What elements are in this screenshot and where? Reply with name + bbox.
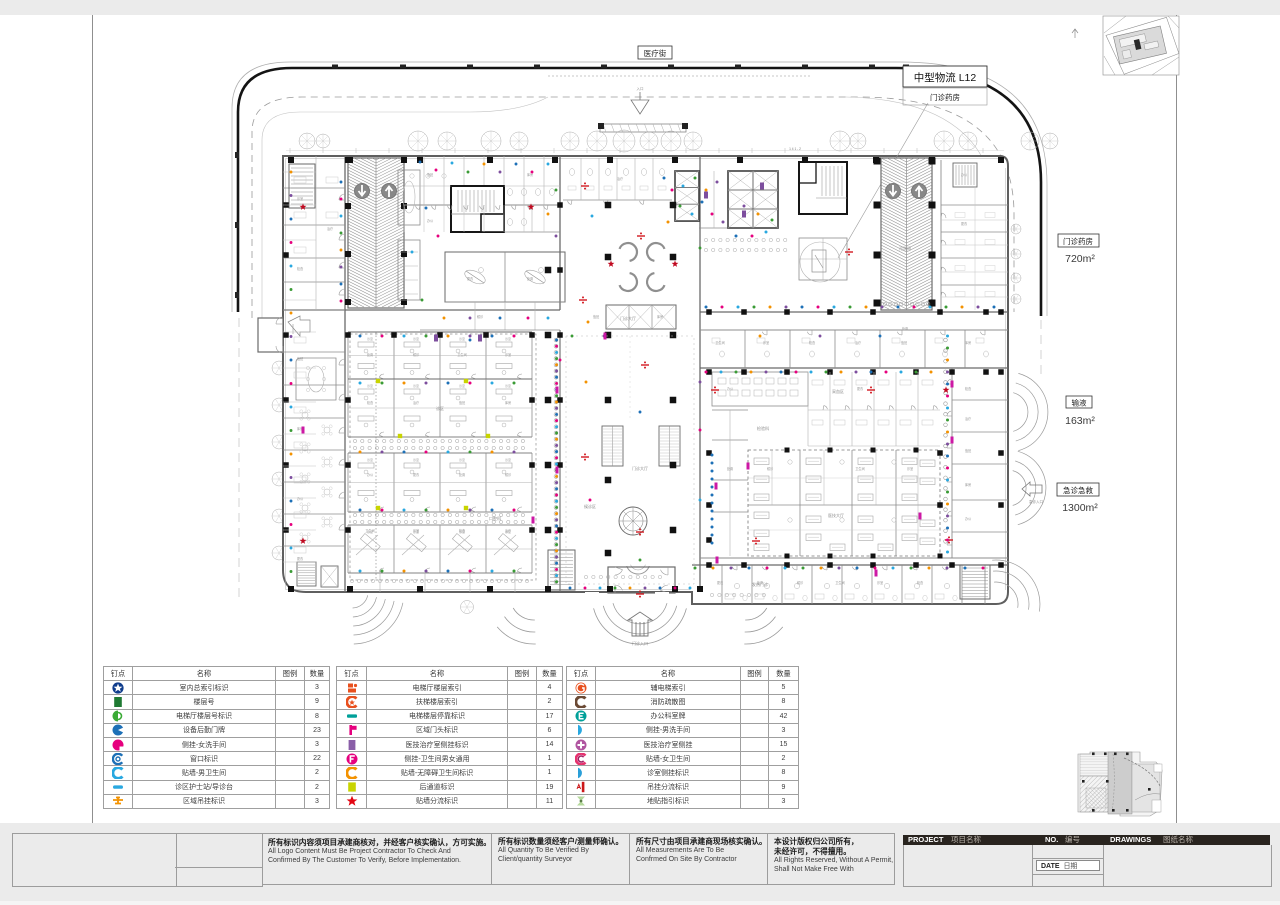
svg-text:值班: 值班 (297, 356, 304, 361)
svg-text:门诊入口: 门诊入口 (632, 640, 648, 646)
svg-text:更衣: 更衣 (857, 386, 864, 391)
svg-text:办公: 办公 (965, 516, 972, 521)
svg-text:污洗间: 污洗间 (899, 245, 911, 251)
svg-text:中型物流 L12: 中型物流 L12 (914, 71, 977, 84)
svg-text:办公: 办公 (427, 218, 434, 223)
svg-text:口腔科: 口腔科 (489, 515, 501, 521)
svg-text:值班: 值班 (593, 314, 600, 319)
svg-text:输液: 输液 (1072, 398, 1088, 408)
svg-text:治疗: 治疗 (327, 226, 334, 231)
svg-text:候诊: 候诊 (413, 352, 420, 357)
svg-text:候诊: 候诊 (477, 314, 484, 319)
svg-text:值班: 值班 (427, 172, 434, 177)
svg-text:门诊大厅: 门诊大厅 (620, 315, 636, 321)
svg-text:诊室: 诊室 (459, 457, 465, 462)
svg-text:办公: 办公 (727, 386, 734, 391)
svg-text:治疗: 治疗 (855, 340, 862, 345)
svg-text:库房: 库房 (965, 482, 971, 487)
svg-text:诊室: 诊室 (367, 383, 373, 388)
svg-text:门诊药房: 门诊药房 (930, 92, 960, 102)
svg-text:处置: 处置 (367, 352, 373, 357)
svg-text:1 4 1 - 2: 1 4 1 - 2 (789, 147, 801, 151)
svg-text:库房: 库房 (965, 340, 971, 345)
svg-text:检查: 检查 (809, 340, 816, 345)
svg-text:治疗: 治疗 (413, 400, 420, 405)
svg-text:卫生间: 卫生间 (835, 580, 845, 585)
svg-text:诊室: 诊室 (505, 457, 511, 462)
svg-text:诊室: 诊室 (459, 336, 465, 341)
svg-text:候诊: 候诊 (505, 472, 512, 477)
svg-text:检查: 检查 (917, 580, 924, 585)
svg-text:卫生间: 卫生间 (365, 528, 375, 533)
svg-text:更衣: 更衣 (413, 472, 420, 477)
svg-text:医疗街: 医疗街 (644, 48, 667, 58)
svg-text:诊室: 诊室 (367, 336, 373, 341)
svg-text:治疗: 治疗 (965, 416, 972, 421)
svg-text:诊室: 诊室 (505, 383, 511, 388)
svg-text:办公: 办公 (961, 172, 968, 177)
svg-text:卫生间: 卫生间 (855, 466, 865, 471)
svg-text:办公: 办公 (367, 472, 374, 477)
svg-text:诊室: 诊室 (413, 457, 419, 462)
svg-text:处置: 处置 (459, 472, 465, 477)
svg-text:1300m²: 1300m² (1062, 502, 1098, 514)
svg-text:卫生间: 卫生间 (715, 340, 725, 345)
svg-text:诊室: 诊室 (877, 580, 883, 585)
svg-text:门诊大厅: 门诊大厅 (632, 465, 648, 471)
svg-text:720m²: 720m² (1065, 253, 1095, 265)
svg-text:更衣: 更衣 (717, 580, 724, 585)
svg-text:诊室: 诊室 (459, 383, 465, 388)
svg-text:值班: 值班 (459, 400, 466, 405)
svg-text:医技大厅: 医技大厅 (828, 512, 844, 518)
svg-text:诊室: 诊室 (413, 336, 419, 341)
svg-text:163m²: 163m² (1065, 415, 1095, 427)
svg-text:卫生间: 卫生间 (457, 352, 467, 357)
svg-text:诊区: 诊区 (436, 405, 444, 411)
svg-text:诊室: 诊室 (763, 340, 769, 345)
svg-text:诊室: 诊室 (505, 352, 511, 357)
svg-text:诊室: 诊室 (297, 196, 303, 201)
svg-text:急诊入口: 急诊入口 (1029, 499, 1044, 504)
svg-text:处置: 处置 (902, 326, 908, 331)
svg-text:检查: 检查 (965, 386, 972, 391)
svg-text:门诊药房: 门诊药房 (1063, 236, 1093, 246)
svg-text:处置: 处置 (727, 466, 733, 471)
svg-text:检查: 检查 (297, 266, 304, 271)
svg-text:诊室: 诊室 (413, 383, 419, 388)
svg-text:候诊区: 候诊区 (584, 503, 596, 509)
svg-text:入口: 入口 (637, 86, 645, 91)
svg-text:候诊: 候诊 (797, 580, 804, 585)
svg-text:采血区: 采血区 (832, 388, 844, 394)
svg-text:值班: 值班 (965, 448, 972, 453)
svg-text:急诊急救: 急诊急救 (1063, 485, 1093, 495)
svg-text:检验科: 检验科 (757, 425, 769, 431)
svg-text:值班: 值班 (901, 340, 908, 345)
svg-text:办公: 办公 (297, 496, 304, 501)
svg-text:诊室: 诊室 (367, 457, 373, 462)
svg-text:治疗: 治疗 (505, 528, 512, 533)
svg-text:更衣: 更衣 (467, 276, 474, 281)
svg-text:治疗: 治疗 (617, 176, 624, 181)
svg-text:更衣: 更衣 (961, 221, 968, 226)
svg-text:检查: 检查 (367, 400, 374, 405)
svg-text:库房: 库房 (657, 314, 663, 319)
svg-text:库房: 库房 (505, 400, 511, 405)
svg-text:更衣: 更衣 (297, 556, 304, 561)
svg-text:诊室: 诊室 (907, 466, 913, 471)
svg-text:发热门诊: 发热门诊 (752, 581, 768, 587)
svg-text:诊室: 诊室 (413, 528, 419, 533)
svg-text:处置: 处置 (527, 276, 533, 281)
svg-text:检查: 检查 (459, 528, 466, 533)
svg-text:候诊: 候诊 (767, 466, 774, 471)
svg-text:诊室: 诊室 (505, 336, 511, 341)
